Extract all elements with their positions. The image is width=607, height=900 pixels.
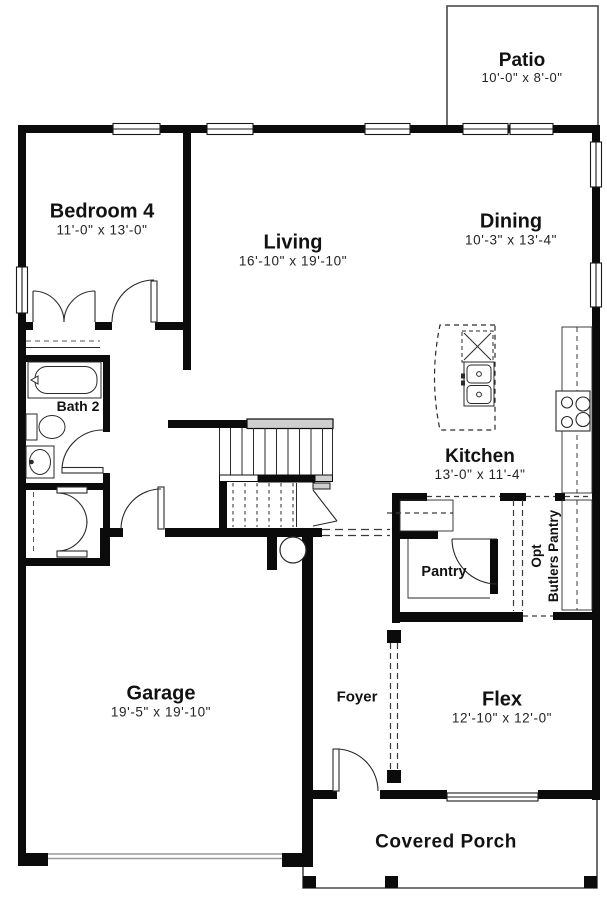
kitchen-sink: [462, 362, 495, 406]
garage-entry-door: [121, 487, 164, 529]
bedroom4-closet-doors: [33, 291, 95, 322]
dishwasher: [462, 331, 493, 362]
garage-door: [48, 854, 282, 859]
label-flex: Flex 12'-10" x 12'-0": [452, 688, 552, 726]
toilet: [26, 414, 65, 440]
window: [463, 124, 508, 135]
window: [113, 124, 160, 135]
opt-butlers-wall: [514, 500, 523, 611]
window: [591, 142, 602, 187]
window: [17, 267, 28, 313]
room-name: Living: [239, 231, 347, 253]
room-name: Garage: [111, 682, 211, 704]
room-dims: 12'-10" x 12'-0": [452, 711, 552, 726]
label-bath2: Bath 2: [57, 399, 100, 415]
porch-post: [584, 876, 597, 888]
room-dims: 10'-0" x 8'-0": [481, 71, 562, 86]
bath-sink: [26, 446, 54, 478]
room-name: Dining: [465, 210, 557, 232]
bath2-door: [62, 430, 103, 473]
room-name: Patio: [481, 50, 562, 71]
room-name: Butlers Pantry: [546, 510, 563, 602]
label-dining: Dining 10'-3" x 13'-4": [465, 210, 557, 248]
label-living: Living 16'-10" x 19'-10": [239, 231, 347, 269]
window: [207, 124, 253, 135]
room-dims: 16'-10" x 19'-10": [239, 254, 347, 269]
room-name: Bath 2: [57, 399, 100, 415]
label-bedroom4: Bedroom 4 11'-0" x 13'-0": [50, 200, 154, 238]
closet-rods: [26, 341, 100, 555]
window: [365, 124, 410, 135]
bedroom4-door: [112, 280, 157, 322]
label-covered-porch: Covered Porch: [375, 831, 517, 852]
foyer-flex-opening: [391, 643, 398, 770]
front-door: [333, 749, 378, 791]
room-name: Foyer: [337, 690, 378, 707]
room-name: Covered Porch: [375, 831, 517, 852]
hall-foyer-opening: [322, 530, 390, 536]
window: [591, 263, 602, 307]
porch-post: [303, 876, 316, 888]
room-name: Bedroom 4: [50, 200, 154, 222]
room-name: Opt: [529, 510, 546, 602]
opt-counter: [400, 500, 453, 531]
foyer-column: [280, 537, 306, 563]
stairs: [220, 419, 334, 527]
floor-plan: Patio 10'-0" x 8'-0" Bedroom 4 11'-0" x …: [0, 0, 607, 900]
bathtub: [28, 362, 101, 398]
porch-post: [385, 876, 398, 888]
label-foyer: Foyer: [337, 690, 378, 707]
label-kitchen: Kitchen 13'-0" x 11'-4": [434, 446, 525, 482]
room-name: Pantry: [421, 564, 466, 580]
stairs-lower-flight: [233, 483, 293, 527]
room-name: Flex: [452, 688, 552, 710]
room-dims: 19'-5" x 19'-10": [111, 705, 211, 720]
window: [510, 124, 553, 135]
linen-closet-doors: [57, 487, 87, 557]
room-dims: 10'-3" x 13'-4": [465, 233, 557, 248]
room-dims: 11'-0" x 13'-0": [50, 223, 154, 238]
room-dims: 13'-0" x 11'-4": [434, 467, 525, 482]
understair-door: [313, 483, 337, 526]
stair-railing: [247, 419, 333, 429]
label-garage: Garage 19'-5" x 19'-10": [111, 682, 211, 720]
window: [447, 793, 538, 801]
label-patio: Patio 10'-0" x 8'-0": [481, 50, 562, 86]
label-opt-butlers-pantry: Opt Butlers Pantry: [529, 510, 563, 602]
label-pantry: Pantry: [421, 564, 466, 580]
butlers-counter: [562, 500, 592, 610]
range: [556, 391, 590, 431]
room-name: Kitchen: [434, 446, 525, 467]
